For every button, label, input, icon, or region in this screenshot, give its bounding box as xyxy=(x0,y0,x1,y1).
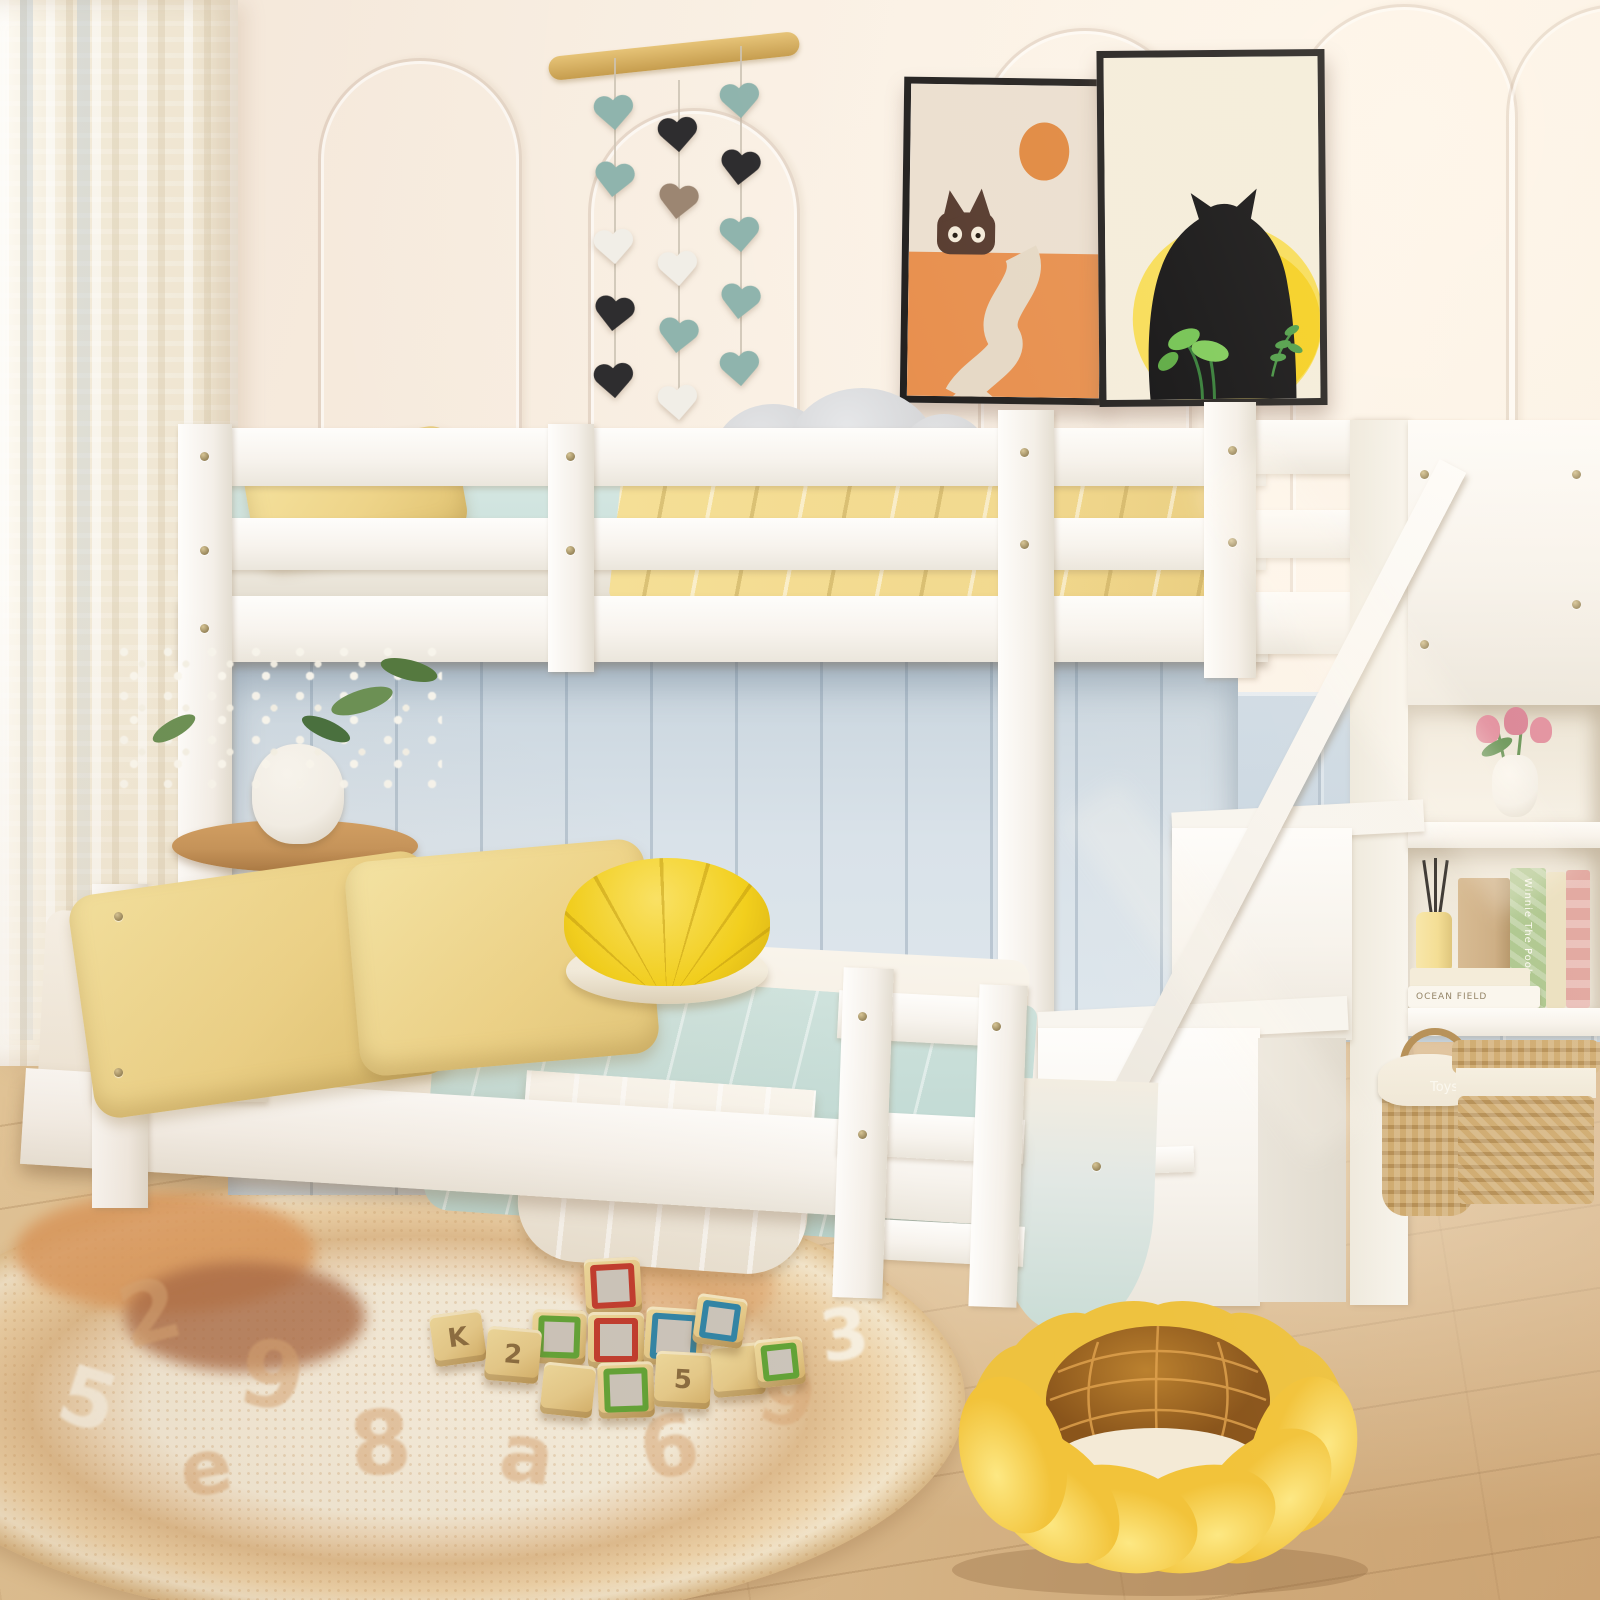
screw xyxy=(858,1012,867,1021)
block-glyph: 2 xyxy=(484,1326,543,1385)
screw xyxy=(858,1130,867,1139)
white-heart xyxy=(656,251,701,292)
block-glyph xyxy=(588,1312,644,1368)
block-glyph: K xyxy=(429,1309,488,1368)
lidded-storage-basket xyxy=(1452,1040,1600,1208)
block-glyph: 5 xyxy=(654,1351,713,1410)
book-upright-cream xyxy=(1546,872,1566,1008)
toy-block xyxy=(539,1361,596,1418)
block-glyph xyxy=(584,1257,643,1316)
screw xyxy=(1420,640,1429,649)
teal-heart xyxy=(655,317,701,360)
flower-vase xyxy=(1492,755,1538,817)
white-heart xyxy=(656,385,701,426)
screw xyxy=(566,452,575,461)
stair-lower-step-side xyxy=(1258,1038,1346,1302)
screw xyxy=(200,624,209,633)
toy-block xyxy=(584,1257,643,1316)
book-upright-pink xyxy=(1566,870,1590,1008)
screw xyxy=(566,546,575,555)
screw xyxy=(1228,446,1237,455)
screw xyxy=(1020,448,1029,457)
pouf-yellow-dome xyxy=(564,858,770,986)
candle-jar xyxy=(1416,912,1452,970)
tulip-flower xyxy=(1530,717,1552,743)
toy-block xyxy=(754,1336,807,1389)
tulip-flower xyxy=(1504,707,1528,735)
book-flat-cream xyxy=(1410,968,1530,988)
book-flat-white: OCEAN FIELD xyxy=(1408,986,1540,1008)
screw xyxy=(114,1068,123,1077)
basket-body xyxy=(1458,1096,1594,1204)
screw xyxy=(1020,540,1029,549)
white-heart xyxy=(592,229,637,270)
guardrail-top-slat xyxy=(180,428,1266,486)
black-heart xyxy=(656,117,701,158)
teal-heart xyxy=(718,217,763,258)
shelf-board xyxy=(1408,822,1600,848)
sunflower-plush-cushion xyxy=(928,1272,1388,1600)
diffuser-stick xyxy=(1422,860,1432,914)
garland-string-middle xyxy=(656,118,700,424)
block-glyph xyxy=(597,1361,655,1419)
screw xyxy=(1572,600,1581,609)
kids-bedroom-scene: 2 9 8 a 6 9 3 g 5 e 2 xyxy=(0,0,1600,1600)
basket-fabric-band xyxy=(1456,1068,1596,1098)
window-frame-shadow xyxy=(77,0,90,1050)
block-glyph xyxy=(692,1293,748,1349)
screw xyxy=(114,912,123,921)
rug-number-glyph: 3 xyxy=(815,1297,873,1373)
teal-heart xyxy=(718,351,763,392)
block-glyph xyxy=(754,1336,807,1389)
garland-string-right xyxy=(718,84,762,390)
garland-string-left xyxy=(592,96,636,402)
black-heart xyxy=(591,295,637,338)
screw xyxy=(1420,470,1429,479)
toy-block: 2 xyxy=(484,1326,543,1385)
artwork-black-cat-sun-image xyxy=(1104,56,1321,400)
teal-heart xyxy=(717,283,763,326)
teal-heart xyxy=(591,161,637,204)
brown-heart xyxy=(655,183,701,226)
toy-block xyxy=(692,1293,748,1349)
screw xyxy=(200,452,209,461)
artwork-desert-cat xyxy=(900,77,1111,406)
black-heart xyxy=(592,363,637,404)
toy-block xyxy=(588,1312,644,1368)
black-heart xyxy=(717,149,763,192)
diffuser-stick xyxy=(1438,860,1448,914)
screw xyxy=(200,546,209,555)
screw xyxy=(1092,1162,1101,1171)
screw xyxy=(992,1022,1001,1031)
shelf-cubby-vase xyxy=(1408,705,1600,825)
artwork-black-cat-sun xyxy=(1096,49,1327,407)
teal-heart xyxy=(592,95,637,136)
diffuser-stick xyxy=(1434,858,1437,914)
rug-letter-glyph: a xyxy=(495,1412,560,1499)
book-spine-text: OCEAN FIELD xyxy=(1416,992,1534,1002)
toy-block: K xyxy=(429,1309,488,1368)
screw xyxy=(1572,470,1581,479)
toy-block: 5 xyxy=(654,1351,713,1410)
guardrail-middle-slat xyxy=(180,518,1266,570)
tulip-flower xyxy=(1476,715,1500,743)
rug-number-glyph: 8 xyxy=(346,1397,415,1490)
block-glyph xyxy=(539,1361,596,1418)
artwork-desert-cat-image xyxy=(907,84,1103,399)
window-frame-shadow xyxy=(20,0,33,1040)
teal-heart xyxy=(718,83,763,124)
screw xyxy=(1228,538,1237,547)
toy-block xyxy=(597,1361,655,1419)
shelf-cubby-books: Winnie The Pooh OCEAN FIELD xyxy=(1408,848,1600,1010)
